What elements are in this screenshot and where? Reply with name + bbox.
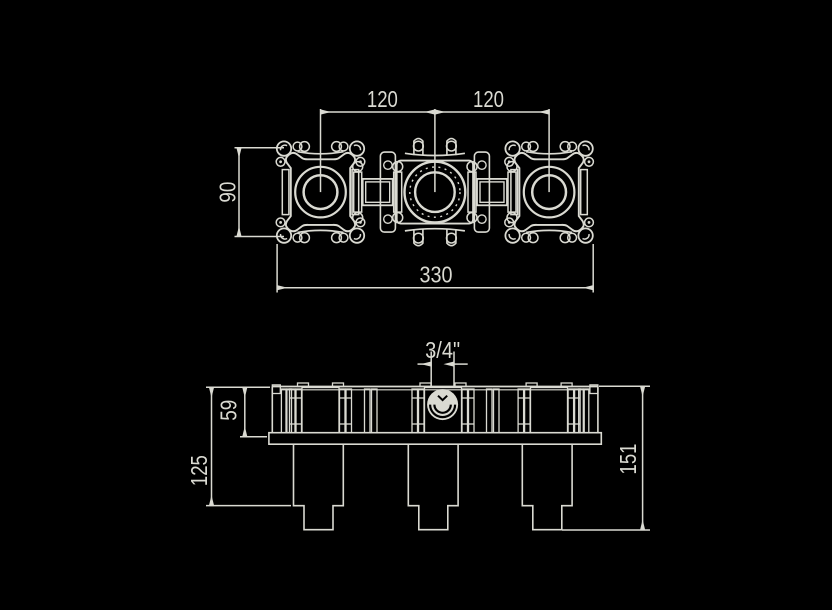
- svg-text:120: 120: [367, 86, 398, 112]
- svg-text:59: 59: [216, 400, 242, 421]
- svg-text:151: 151: [615, 444, 641, 475]
- svg-text:120: 120: [473, 86, 504, 112]
- svg-text:330: 330: [420, 262, 453, 288]
- svg-text:3/4": 3/4": [425, 337, 460, 363]
- svg-text:125: 125: [186, 455, 212, 486]
- svg-text:90: 90: [215, 182, 241, 203]
